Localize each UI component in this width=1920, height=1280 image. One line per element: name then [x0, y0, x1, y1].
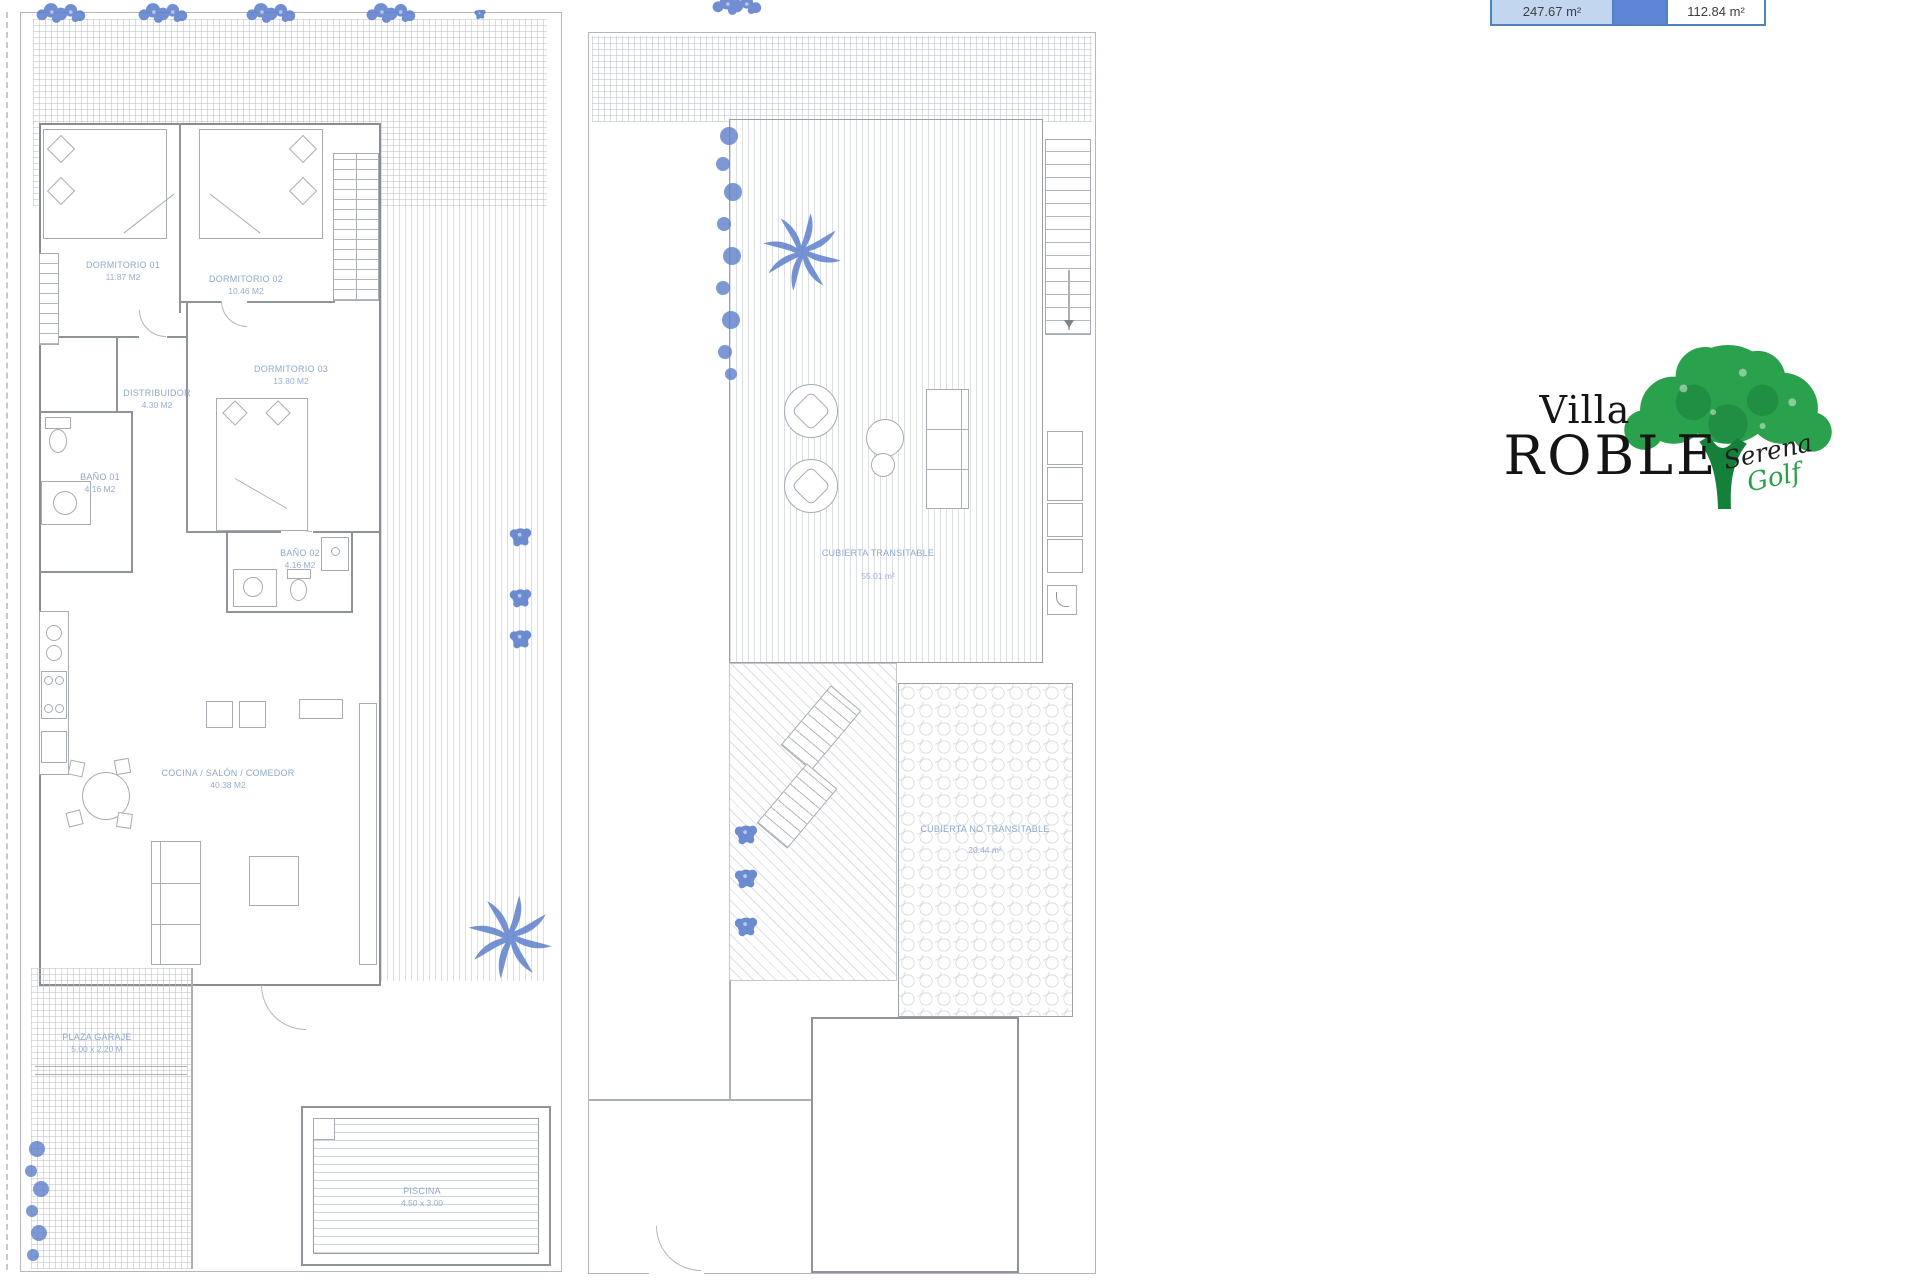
pool-step: [313, 1118, 335, 1140]
ground-floor-plan: DORMITORIO 01 11.87 M2 DORMITORIO 02 10.…: [20, 12, 562, 1272]
roof-plan: CUBIERTA TRANSITABLE 55.01 m² CUBIERTA N…: [588, 32, 1096, 1274]
room-name: PISCINA: [401, 1187, 443, 1196]
boundary-line: [729, 981, 731, 1099]
roof-label-no-transitable: CUBIERTA NO TRANSITABLE 20.44 m²: [920, 825, 1049, 855]
sink-hook: [1056, 592, 1069, 607]
wall: [116, 336, 118, 413]
vine-icon: [23, 1137, 51, 1267]
chair-icon: [68, 760, 86, 778]
outdoor-sink-icon: [1047, 585, 1077, 615]
room-label-dormitorio-01: DORMITORIO 01 11.87 M2: [86, 261, 160, 282]
tv-bench-icon: [359, 703, 377, 965]
bush-icon: [473, 7, 487, 21]
shower-head: [331, 547, 340, 556]
wardrobe-divider: [356, 154, 357, 300]
room-name: DORMITORIO 01: [86, 261, 160, 270]
bush-icon: [732, 820, 760, 848]
palm-tree-icon: [464, 891, 556, 983]
shrub-icon: [135, 1, 189, 25]
armchair-icon: [206, 701, 233, 728]
room-label-piscina: PISCINA 4.50 x 3.00: [401, 1187, 443, 1208]
toilet-icon: [45, 417, 71, 429]
room-label-dormitorio-03: DORMITORIO 03 13.80 M2: [254, 365, 328, 386]
roof-unit: [1047, 539, 1083, 573]
wall: [131, 411, 133, 573]
wall: [313, 531, 379, 533]
shrub-icon: [709, 0, 763, 17]
bush-icon: [507, 523, 534, 550]
room-label-cocina-salon: COCINA / SALÓN / COMEDOR 40.38 M2: [161, 769, 294, 790]
round-chair-icon: [784, 384, 838, 438]
garage-edge: [191, 968, 193, 1269]
fridge-icon: [41, 731, 67, 763]
stairs-arrow: [1064, 320, 1074, 328]
round-chair-icon: [784, 459, 838, 513]
entrance-door-arc: [261, 985, 306, 1030]
roof-unit: [1047, 503, 1083, 537]
boundary-line: [589, 1099, 811, 1101]
wall: [39, 571, 133, 573]
sofa-icon: [151, 841, 201, 965]
room-name: DORMITORIO 03: [254, 365, 328, 374]
summary-cell-built: 112.84 m²: [1668, 0, 1764, 24]
armchair-icon: [239, 701, 266, 728]
room-label-distribuidor: DISTRIBUIDOR 4.30 M2: [123, 389, 191, 410]
wall: [186, 301, 188, 533]
roof-area-name: CUBIERTA TRANSITABLE: [822, 549, 934, 558]
wall: [226, 611, 353, 613]
garage-stripe: [35, 1066, 187, 1067]
bush-icon: [732, 912, 760, 940]
logo-title-roble: ROBLE: [1495, 429, 1727, 483]
wall: [247, 301, 335, 303]
chair-seat: [791, 466, 831, 506]
summary-cell-spacer: [1612, 0, 1668, 24]
walkable-roof: [729, 119, 1043, 663]
bush-icon: [507, 584, 534, 611]
roof-unit: [1047, 431, 1083, 465]
room-area: 10.46 M2: [209, 287, 283, 296]
room-area: 4.50 x 3.00: [401, 1199, 443, 1208]
room-label-bano-01: BAÑO 01 4.16 M2: [80, 473, 120, 494]
towel-rail-icon: [39, 253, 59, 345]
room-label-dormitorio-02: DORMITORIO 02 10.46 M2: [209, 275, 283, 296]
shrub-icon: [363, 1, 417, 25]
round-stool-icon: [871, 453, 895, 477]
room-name: BAÑO 02: [280, 549, 320, 558]
garage-stripe: [35, 1074, 187, 1075]
palm-tree-icon: [759, 209, 845, 295]
room-name: BAÑO 01: [80, 473, 120, 482]
floor-plan-sheet: DORMITORIO 01 11.87 M2 DORMITORIO 02 10.…: [0, 0, 1920, 1280]
sink-basin: [53, 491, 77, 515]
room-area: 40.38 M2: [161, 781, 294, 790]
room-area: 11.87 M2: [86, 273, 160, 282]
roof-garden-top: [592, 36, 1092, 122]
sofa-icon: [926, 389, 969, 509]
sink-basin: [243, 577, 263, 597]
gate-arc: [656, 1226, 701, 1271]
garage-area: [31, 968, 191, 1269]
kitchen-sink: [46, 645, 62, 661]
burner: [55, 676, 64, 685]
room-area: 4.16 M2: [280, 561, 320, 570]
room-name: DORMITORIO 02: [209, 275, 283, 284]
roof-area-name: CUBIERTA NO TRANSITABLE: [920, 825, 1049, 834]
sofa-back: [961, 390, 962, 508]
sofa-back: [160, 842, 161, 964]
shrub-icon: [243, 1, 297, 25]
roof-unit: [1047, 467, 1083, 501]
wall: [226, 531, 228, 613]
burner: [55, 704, 64, 713]
wall: [167, 336, 186, 338]
roof-area-value: 20.44 m²: [920, 846, 1049, 855]
room-area: 4.16 M2: [80, 485, 120, 494]
summary-cell-total: 247.67 m²: [1492, 0, 1612, 24]
chair-seat: [791, 391, 831, 431]
bush-icon: [507, 625, 534, 652]
room-name: COCINA / SALÓN / COMEDOR: [161, 769, 294, 778]
room-name: PLAZA GARAJE: [62, 1033, 132, 1042]
sideboard-icon: [299, 699, 343, 719]
room-area: 4.30 M2: [123, 401, 191, 410]
toilet-bowl: [49, 429, 67, 453]
toilet-bowl: [290, 579, 307, 601]
lower-structure: [811, 1017, 1019, 1273]
round-table-icon: [866, 419, 904, 457]
coffee-table-icon: [249, 856, 299, 906]
room-area: 5.00 x 2.20 M: [62, 1045, 132, 1054]
bush-icon: [732, 864, 760, 892]
chair-icon: [114, 758, 131, 775]
wall: [186, 531, 281, 533]
wall: [179, 123, 181, 313]
kitchen-sink: [46, 625, 62, 641]
logo: Villa ROBLE Serena Golf: [1495, 335, 1845, 515]
room-label-bano-02: BAÑO 02 4.16 M2: [280, 549, 320, 570]
wall: [351, 531, 353, 613]
room-label-plaza-garaje: PLAZA GARAJE 5.00 x 2.20 M: [62, 1033, 132, 1054]
burner: [44, 704, 53, 713]
roof-area-value: 55.01 m²: [822, 572, 934, 581]
chair-icon: [116, 812, 133, 829]
stairs: [1045, 139, 1091, 335]
room-name: DISTRIBUIDOR: [123, 389, 191, 398]
room-area: 13.80 M2: [254, 377, 328, 386]
wardrobe-icon: [333, 153, 379, 301]
area-summary-table: 247.67 m² 112.84 m²: [1490, 0, 1766, 26]
toilet-icon: [287, 569, 311, 579]
shrub-icon: [33, 1, 87, 25]
roof-label-transitable: CUBIERTA TRANSITABLE 55.01 m²: [822, 549, 934, 581]
burner: [44, 676, 53, 685]
vine-icon: [713, 121, 747, 383]
plot-boundary-dashed: [6, 12, 8, 1270]
